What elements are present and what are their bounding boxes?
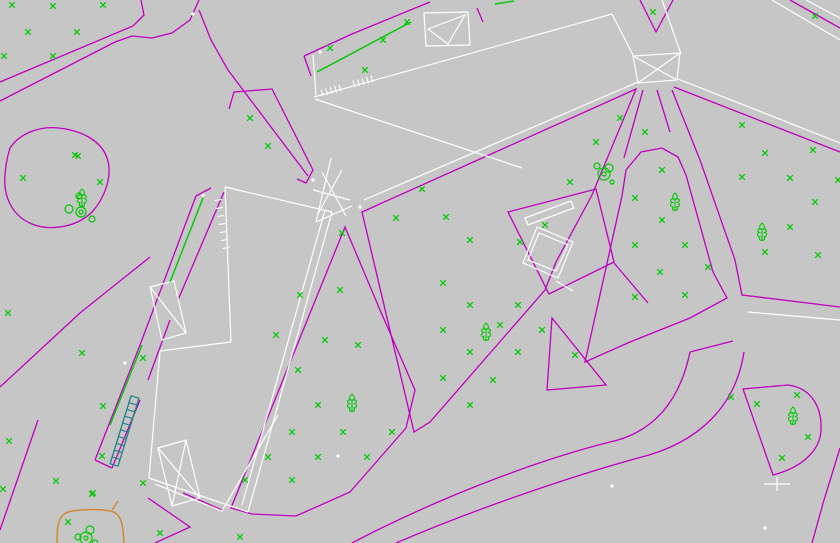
grass-mark: [440, 375, 446, 381]
grass-mark: [440, 327, 446, 333]
grass-mark: [99, 453, 105, 459]
grass-mark: [289, 477, 295, 483]
point-marker: [123, 361, 126, 364]
parcel-edge: [199, 10, 308, 176]
parcel-edge: [672, 90, 840, 307]
grass-mark: [74, 29, 80, 35]
grass-mark: [657, 269, 663, 275]
shrub-circle: [79, 210, 83, 214]
grass-mark: [682, 292, 688, 298]
building-edge: [662, 0, 681, 54]
grass-mark: [515, 302, 521, 308]
tree-symbol: [481, 323, 490, 341]
point-marker: [763, 526, 766, 529]
grass-marks: [0, 2, 840, 540]
building-edge: [242, 210, 325, 505]
stair-tick: [127, 409, 136, 412]
stair-tick: [219, 223, 226, 224]
grass-mark: [794, 392, 800, 398]
building-edge: [149, 478, 248, 512]
point-marker: [358, 205, 361, 208]
building-edge: [806, 0, 840, 18]
grass-mark: [393, 215, 399, 221]
grass-mark: [815, 252, 821, 258]
cad-viewport[interactable]: [0, 0, 840, 543]
parcel-curve: [5, 128, 109, 228]
parcel-edge: [95, 460, 112, 468]
tree-symbol: [757, 223, 766, 241]
grass-mark: [50, 53, 56, 59]
building-edge: [225, 187, 231, 342]
grass-mark: [50, 3, 56, 9]
hedge-line: [170, 198, 203, 282]
grass-mark: [337, 287, 343, 293]
grass-mark: [515, 349, 521, 355]
parcel-edge: [657, 90, 670, 132]
shrub-circle: [598, 168, 610, 180]
grass-mark: [490, 377, 496, 383]
grass-mark: [20, 175, 26, 181]
stair-tick: [223, 247, 230, 248]
grass-mark: [787, 224, 793, 230]
building-edge: [313, 55, 316, 95]
grass-mark: [237, 534, 243, 540]
point-marker: [311, 178, 314, 181]
grass-mark: [567, 179, 573, 185]
flowerbed-edge: [112, 501, 118, 510]
grass-mark: [659, 217, 665, 223]
building-edge: [313, 190, 350, 200]
parcel-edge: [0, 0, 199, 101]
grass-mark: [79, 350, 85, 356]
grass-mark: [389, 429, 395, 435]
grass-mark: [517, 239, 523, 245]
grass-mark: [805, 434, 811, 440]
grass-mark: [467, 402, 473, 408]
grass-mark: [340, 429, 346, 435]
grass-mark: [273, 332, 279, 338]
grass-mark: [315, 454, 321, 460]
grass-mark: [247, 115, 253, 121]
stair-tick: [131, 396, 140, 399]
grass-mark: [572, 352, 578, 358]
shrub-circle: [602, 172, 606, 176]
grass-mark: [1, 53, 7, 59]
grass-mark: [419, 186, 425, 192]
building-edge: [678, 79, 840, 143]
tree-symbol: [347, 394, 356, 412]
parcel-edge: [624, 90, 643, 158]
parcel-edge: [812, 448, 840, 543]
grass-mark: [289, 429, 295, 435]
point-marker: [336, 454, 339, 457]
grass-mark: [779, 455, 785, 461]
building-edge: [748, 312, 840, 320]
grass-mark: [100, 403, 106, 409]
grass-mark: [0, 486, 6, 492]
stair-tick: [116, 443, 125, 446]
grass-mark: [265, 454, 271, 460]
grass-mark: [9, 2, 15, 8]
building-edge: [772, 0, 840, 40]
grass-mark: [295, 367, 301, 373]
parcel-edge: [0, 420, 38, 530]
grass-mark: [440, 280, 446, 286]
building-edge: [315, 99, 522, 168]
shrub-circle: [65, 205, 73, 213]
grass-mark: [157, 530, 163, 536]
grass-mark: [739, 122, 745, 128]
building-edge: [248, 212, 332, 512]
parcel-edge: [674, 87, 840, 152]
grass-mark: [140, 480, 146, 486]
grass-mark: [762, 249, 768, 255]
shrub-circle: [89, 216, 95, 222]
point-marker: [318, 50, 321, 53]
shrub-circle: [594, 163, 600, 169]
building-edge: [160, 342, 231, 351]
grass-mark: [467, 237, 473, 243]
grass-mark: [322, 337, 328, 343]
shrub-circles: [65, 163, 614, 543]
grass-mark: [97, 179, 103, 185]
point-marker: [191, 12, 194, 15]
grass-mark: [327, 45, 333, 51]
point-marker: [610, 484, 613, 487]
building-and-curb-lines: [123, 0, 840, 530]
stair-tick: [124, 416, 133, 419]
grass-mark: [467, 302, 473, 308]
grass-mark: [739, 174, 745, 180]
grass-mark: [682, 242, 688, 248]
parcel-edge: [148, 498, 190, 543]
grass-mark: [812, 199, 818, 205]
building-edge: [612, 14, 634, 57]
shrub-circle: [84, 536, 88, 540]
grass-mark: [362, 67, 368, 73]
parcel-and-road-lines: [0, 0, 840, 543]
grass-mark: [650, 9, 656, 15]
grass-mark: [315, 402, 321, 408]
parcel-edge: [0, 0, 144, 82]
stair-ticks: [110, 76, 373, 467]
grass-mark: [632, 294, 638, 300]
grass-mark: [705, 264, 711, 270]
grass-mark: [140, 355, 146, 361]
grass-mark: [380, 37, 386, 43]
grass-mark: [762, 150, 768, 156]
planting-lines: [110, 1, 514, 425]
grass-mark: [642, 129, 648, 135]
grass-mark: [659, 167, 665, 173]
stair-tick: [220, 231, 227, 232]
grass-mark: [65, 519, 71, 525]
parcel-edge: [304, 2, 430, 56]
grass-mark: [539, 327, 545, 333]
building-detail: [428, 15, 465, 44]
parcel-edge: [304, 56, 311, 76]
hedge-line: [495, 1, 514, 4]
point-marker: [201, 193, 204, 196]
grass-mark: [754, 401, 760, 407]
tree-symbol: [788, 407, 797, 425]
grass-mark: [25, 29, 31, 35]
parcel-curve: [352, 341, 733, 543]
grass-mark: [632, 242, 638, 248]
grass-mark: [497, 322, 503, 328]
building-edge: [149, 351, 160, 478]
flowerbed-outline: [57, 501, 124, 543]
grass-mark: [467, 349, 473, 355]
grass-mark: [355, 342, 361, 348]
stair-tick: [129, 402, 138, 405]
grass-mark: [617, 115, 623, 121]
parcel-edge: [0, 257, 150, 387]
grass-mark: [542, 222, 548, 228]
grass-mark: [835, 177, 840, 183]
site-plan-drawing[interactable]: [0, 0, 840, 543]
shrub-circle: [76, 207, 86, 217]
grass-mark: [810, 147, 816, 153]
shrub-circle: [80, 532, 92, 543]
grass-mark: [787, 175, 793, 181]
grass-mark: [632, 195, 638, 201]
stair-tick: [217, 215, 224, 216]
grass-mark: [5, 310, 11, 316]
grass-mark: [364, 454, 370, 460]
shrub-circle: [610, 180, 614, 184]
grass-mark: [265, 143, 271, 149]
grass-mark: [6, 438, 12, 444]
parcel-edge: [614, 263, 648, 303]
grass-mark: [443, 214, 449, 220]
grass-mark: [100, 2, 106, 8]
parcel-curve: [396, 352, 744, 543]
grass-mark: [593, 139, 599, 145]
building-detail: [525, 201, 574, 225]
parcel-edge: [477, 8, 483, 22]
tree-symbol: [670, 193, 679, 211]
parcel-edge: [229, 89, 313, 183]
parcel-curve: [743, 385, 821, 475]
grass-mark: [53, 478, 59, 484]
